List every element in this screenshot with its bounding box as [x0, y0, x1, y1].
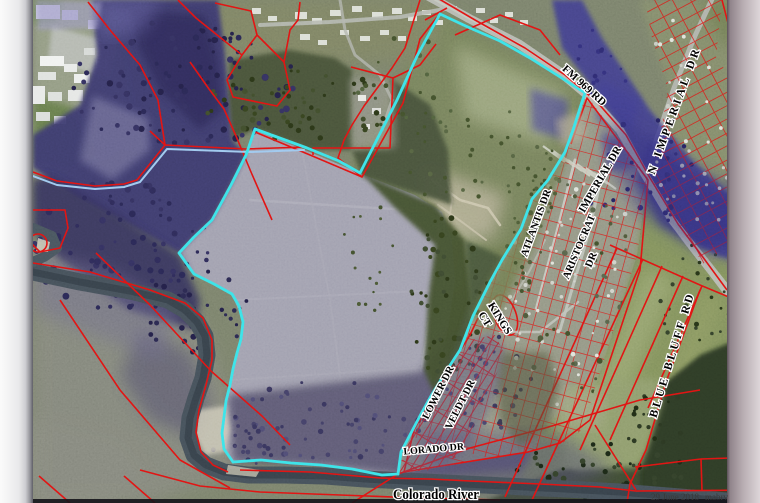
svg-text:mabrv: mabrv: [705, 492, 728, 502]
svg-text:29 June 2018: 29 June 2018: [651, 492, 699, 502]
svg-text:Colorado River: Colorado River: [393, 487, 479, 503]
